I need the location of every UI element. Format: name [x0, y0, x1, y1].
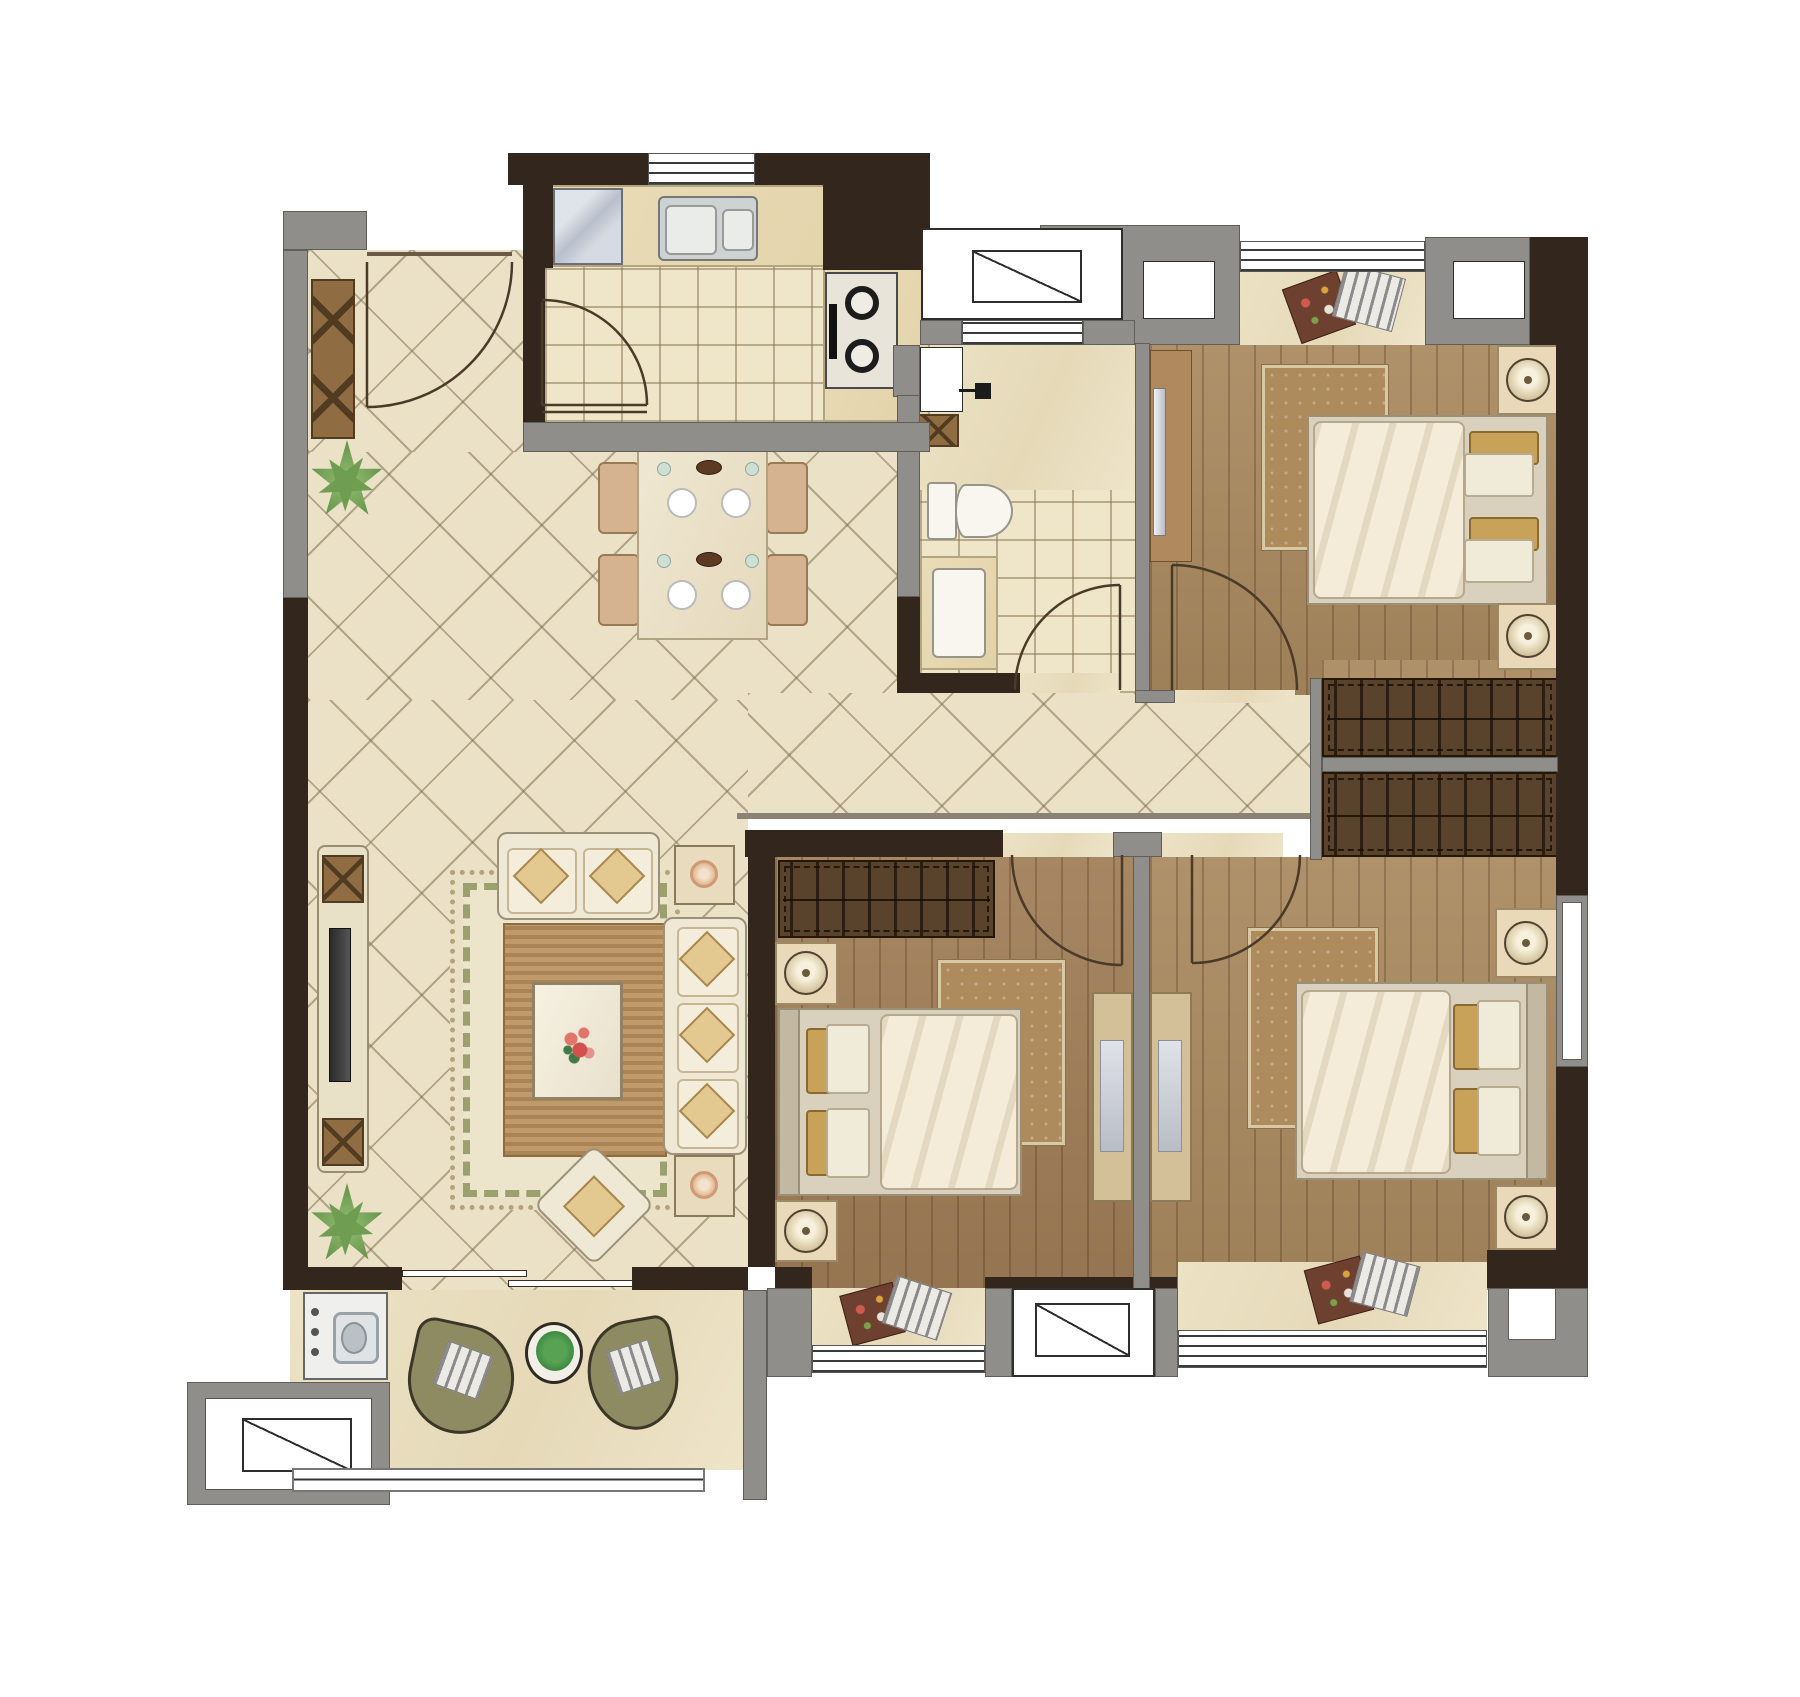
kitchen-door-arc: [542, 300, 647, 405]
floorplan-canvas: [0, 0, 1800, 1697]
bedroom2-door-arc: [1012, 855, 1122, 965]
door-swing-arcs: [0, 0, 1800, 1697]
kitchen-door-leaf: [542, 302, 647, 412]
entry-door-arc: [367, 262, 512, 407]
bedroom3-door-arc: [1192, 855, 1300, 963]
bedroom1-door-arc: [1172, 565, 1297, 690]
bathroom-door-arc: [1015, 585, 1120, 690]
